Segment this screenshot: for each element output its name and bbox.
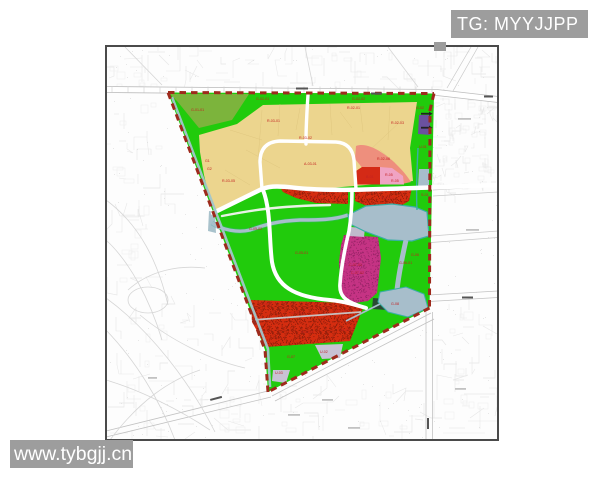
svg-text:G-02-02: G-02-02 [352,97,365,101]
svg-text:R-03-01: R-03-01 [267,119,280,123]
svg-text:G1: G1 [205,159,210,163]
svg-text:G-06-01: G-06-01 [399,261,412,265]
svg-text:G-02: G-02 [416,106,424,110]
svg-text:G-08: G-08 [391,302,399,306]
svg-text:R-02-03: R-02-03 [391,121,404,125]
svg-text:M-01-02: M-01-02 [335,309,348,313]
svg-text:M-01-01: M-01-01 [291,311,304,315]
svg-text:R-03-05: R-03-05 [222,179,235,183]
svg-text:A-03-01: A-03-01 [304,162,317,166]
svg-text:G2: G2 [207,167,212,171]
svg-text:R-05: R-05 [391,179,399,183]
svg-text:U-02: U-02 [320,350,328,354]
svg-text:B-02-02: B-02-02 [381,196,394,200]
svg-text:R-03-02: R-03-02 [299,136,312,140]
svg-text:G-02-01: G-02-01 [256,97,269,101]
svg-text:G-05-03: G-05-03 [259,302,272,306]
svg-text:G-07: G-07 [287,355,295,359]
svg-text:M-02-02: M-02-02 [341,328,354,332]
svg-text:G-06: G-06 [411,253,419,257]
svg-text:R-02-01: R-02-01 [347,106,360,110]
svg-text:S-01: S-01 [421,193,429,197]
svg-text:M-02-01: M-02-01 [301,330,314,334]
svg-text:G-01-01: G-01-01 [191,108,204,112]
svg-text:B-01: B-01 [366,175,374,179]
svg-text:G-05-02: G-05-02 [249,227,262,231]
svg-text:G-05-01: G-05-01 [295,251,308,255]
svg-text:R-02-06: R-02-06 [377,157,390,161]
svg-text:R-05: R-05 [385,173,393,177]
svg-text:U-01: U-01 [419,145,427,149]
svg-text:C-07-01: C-07-01 [349,263,362,267]
svg-text:B-02-01: B-02-01 [309,195,322,199]
svg-text:C-07-02: C-07-02 [351,271,364,275]
svg-text:U-03: U-03 [275,371,283,375]
